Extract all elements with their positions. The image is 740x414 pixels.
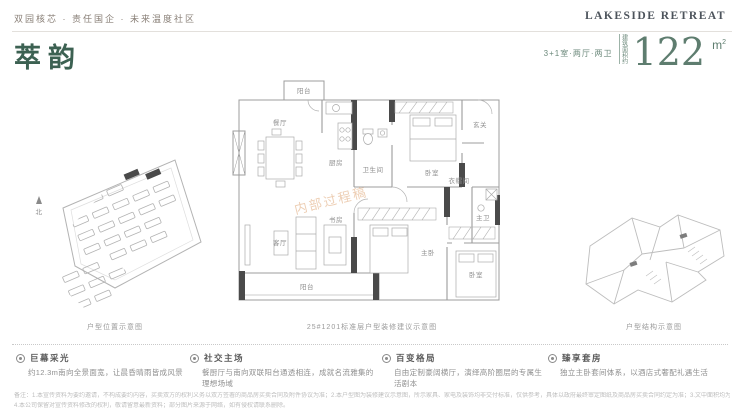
feature-title: 社交主场 [204,352,244,364]
room-label-living: 客厅 [273,238,287,247]
area-value: 122 [633,36,706,68]
room-label-south-balcony: 阳台 [300,282,314,291]
compass-north-label: 北 [36,208,43,216]
compass-arrow-icon [36,196,42,204]
header-divider [12,31,732,32]
room-label-master-bath: 主卫 [476,213,490,222]
feature-suite: 臻享套房 独立主卧套间体系，以酒店式奢配礼遇生活 [548,352,730,379]
area-unit: m2 [712,38,726,52]
room-label-kitchen: 厨房 [329,158,343,167]
feature-bullet-icon [190,354,199,363]
header-tagline: 双园核芯 · 责任国企 · 未来温度社区 [14,12,196,25]
internal-draft-watermark: 内部过程稿 [293,184,369,217]
feature-daylight: 巨幕采光 约12.3m南向全景面宽，让晨昏晴雨皆成风景 [16,352,186,379]
room-label-north-balcony: 阳台 [297,86,311,95]
feature-desc: 约12.3m南向全景面宽，让晨昏晴雨皆成风景 [28,368,186,379]
disclaimer: 备注：1.本宣传资料为要约邀请，不构成要约内容，买卖双方的权利义务以双方签署的商… [14,392,730,411]
room-label-cloakroom: 衣帽间 [449,176,470,185]
disclaimer-line2: 4.本公司保留对宣传资料修改的权利，敬请留意最新资料；部分图片来源于网络，如有侵… [14,402,730,412]
plan-title: 萃韵 [14,36,82,75]
floorplan-caption: 25#1201标准层户型装修建议示意图 [232,322,512,332]
flyer-canvas: 双园核芯 · 责任国企 · 未来温度社区 LAKESIDE RETREAT 萃韵… [0,0,740,414]
room-label-study: 书房 [329,215,343,224]
feature-social: 社交主场 餐厨厅与南向双联阳台通透相连，成就名流雅集的理想场域 [190,352,378,389]
floorplan-svg: 阳台 厨房 餐厅 卫生间 卧室 玄关 衣帽间 主卫 客厅 书房 主卧 卧室 阳台… [232,75,512,320]
feature-title: 巨幕采光 [30,352,70,364]
brand-logo: LAKESIDE RETREAT [585,10,726,22]
room-label-dining: 餐厅 [273,118,287,127]
room-label-bedroom3: 卧室 [469,270,483,279]
features-divider [12,344,728,345]
structure-caption: 户型结构示意图 [578,322,730,332]
site-plan-diagram: 北 [25,148,205,318]
room-label-bedroom2: 卧室 [425,168,439,177]
feature-desc: 自由定制豪阔横厅，演绎高阶圈层的专属生活剧本 [394,368,544,389]
feature-title: 百变格局 [396,352,436,364]
area-label: 建筑面积约 [619,34,627,64]
structure-diagram [580,196,730,321]
feature-desc: 餐厨厅与南向双联阳台通透相连，成就名流雅集的理想场域 [202,368,378,389]
feature-desc: 独立主卧套间体系，以酒店式奢配礼遇生活 [560,368,730,379]
room-label-bath: 卫生间 [363,165,384,174]
spec-group: 3+1室·两厅·两卫 建筑面积约 122 m2 [544,34,726,68]
feature-bullet-icon [548,354,557,363]
feature-layout: 百变格局 自由定制豪阔横厅，演绎高阶圈层的专属生活剧本 [382,352,544,389]
feature-title: 臻享套房 [562,352,602,364]
feature-bullet-icon [16,354,25,363]
room-label-master: 主卧 [421,248,435,257]
room-label-entry: 玄关 [473,120,487,129]
disclaimer-line1: 备注：1.本宣传资料为要约邀请，不构成要约内容，买卖双方的权利义务以双方签署的商… [14,392,730,402]
room-spec: 3+1室·两厅·两卫 [544,48,613,59]
site-plan-caption: 户型位置示意图 [25,322,205,332]
feature-bullet-icon [382,354,391,363]
